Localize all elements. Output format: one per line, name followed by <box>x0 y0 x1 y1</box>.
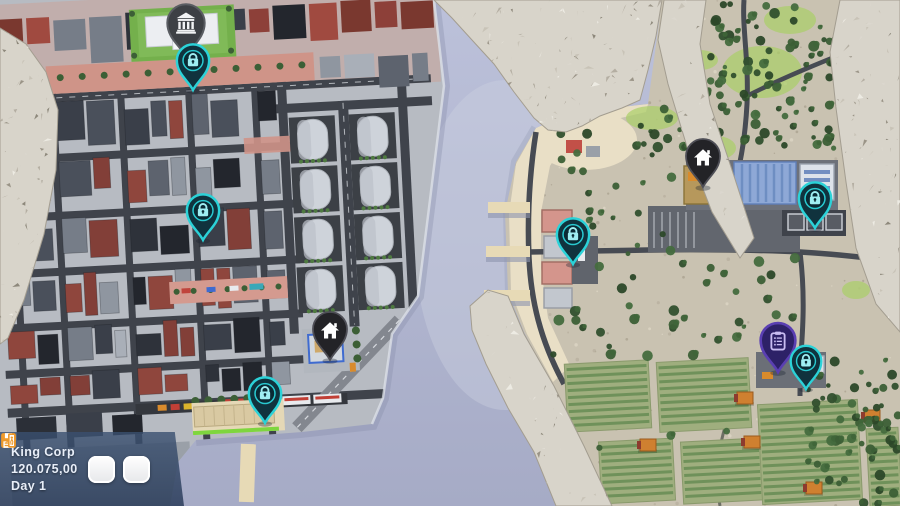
hud-panel: King Corp 120.075,00 Day 1 <box>0 432 184 506</box>
game-screen: King Corp 120.075,00 Day 1 <box>0 0 900 506</box>
day-display: Day 1 <box>11 478 78 495</box>
game-map-viewport[interactable] <box>0 0 900 506</box>
money-display: 120.075,00 <box>11 461 78 478</box>
company-name: King Corp <box>11 444 78 461</box>
exit-door-icon <box>0 432 17 449</box>
save-button[interactable] <box>88 456 115 483</box>
exit-button[interactable] <box>123 456 150 483</box>
